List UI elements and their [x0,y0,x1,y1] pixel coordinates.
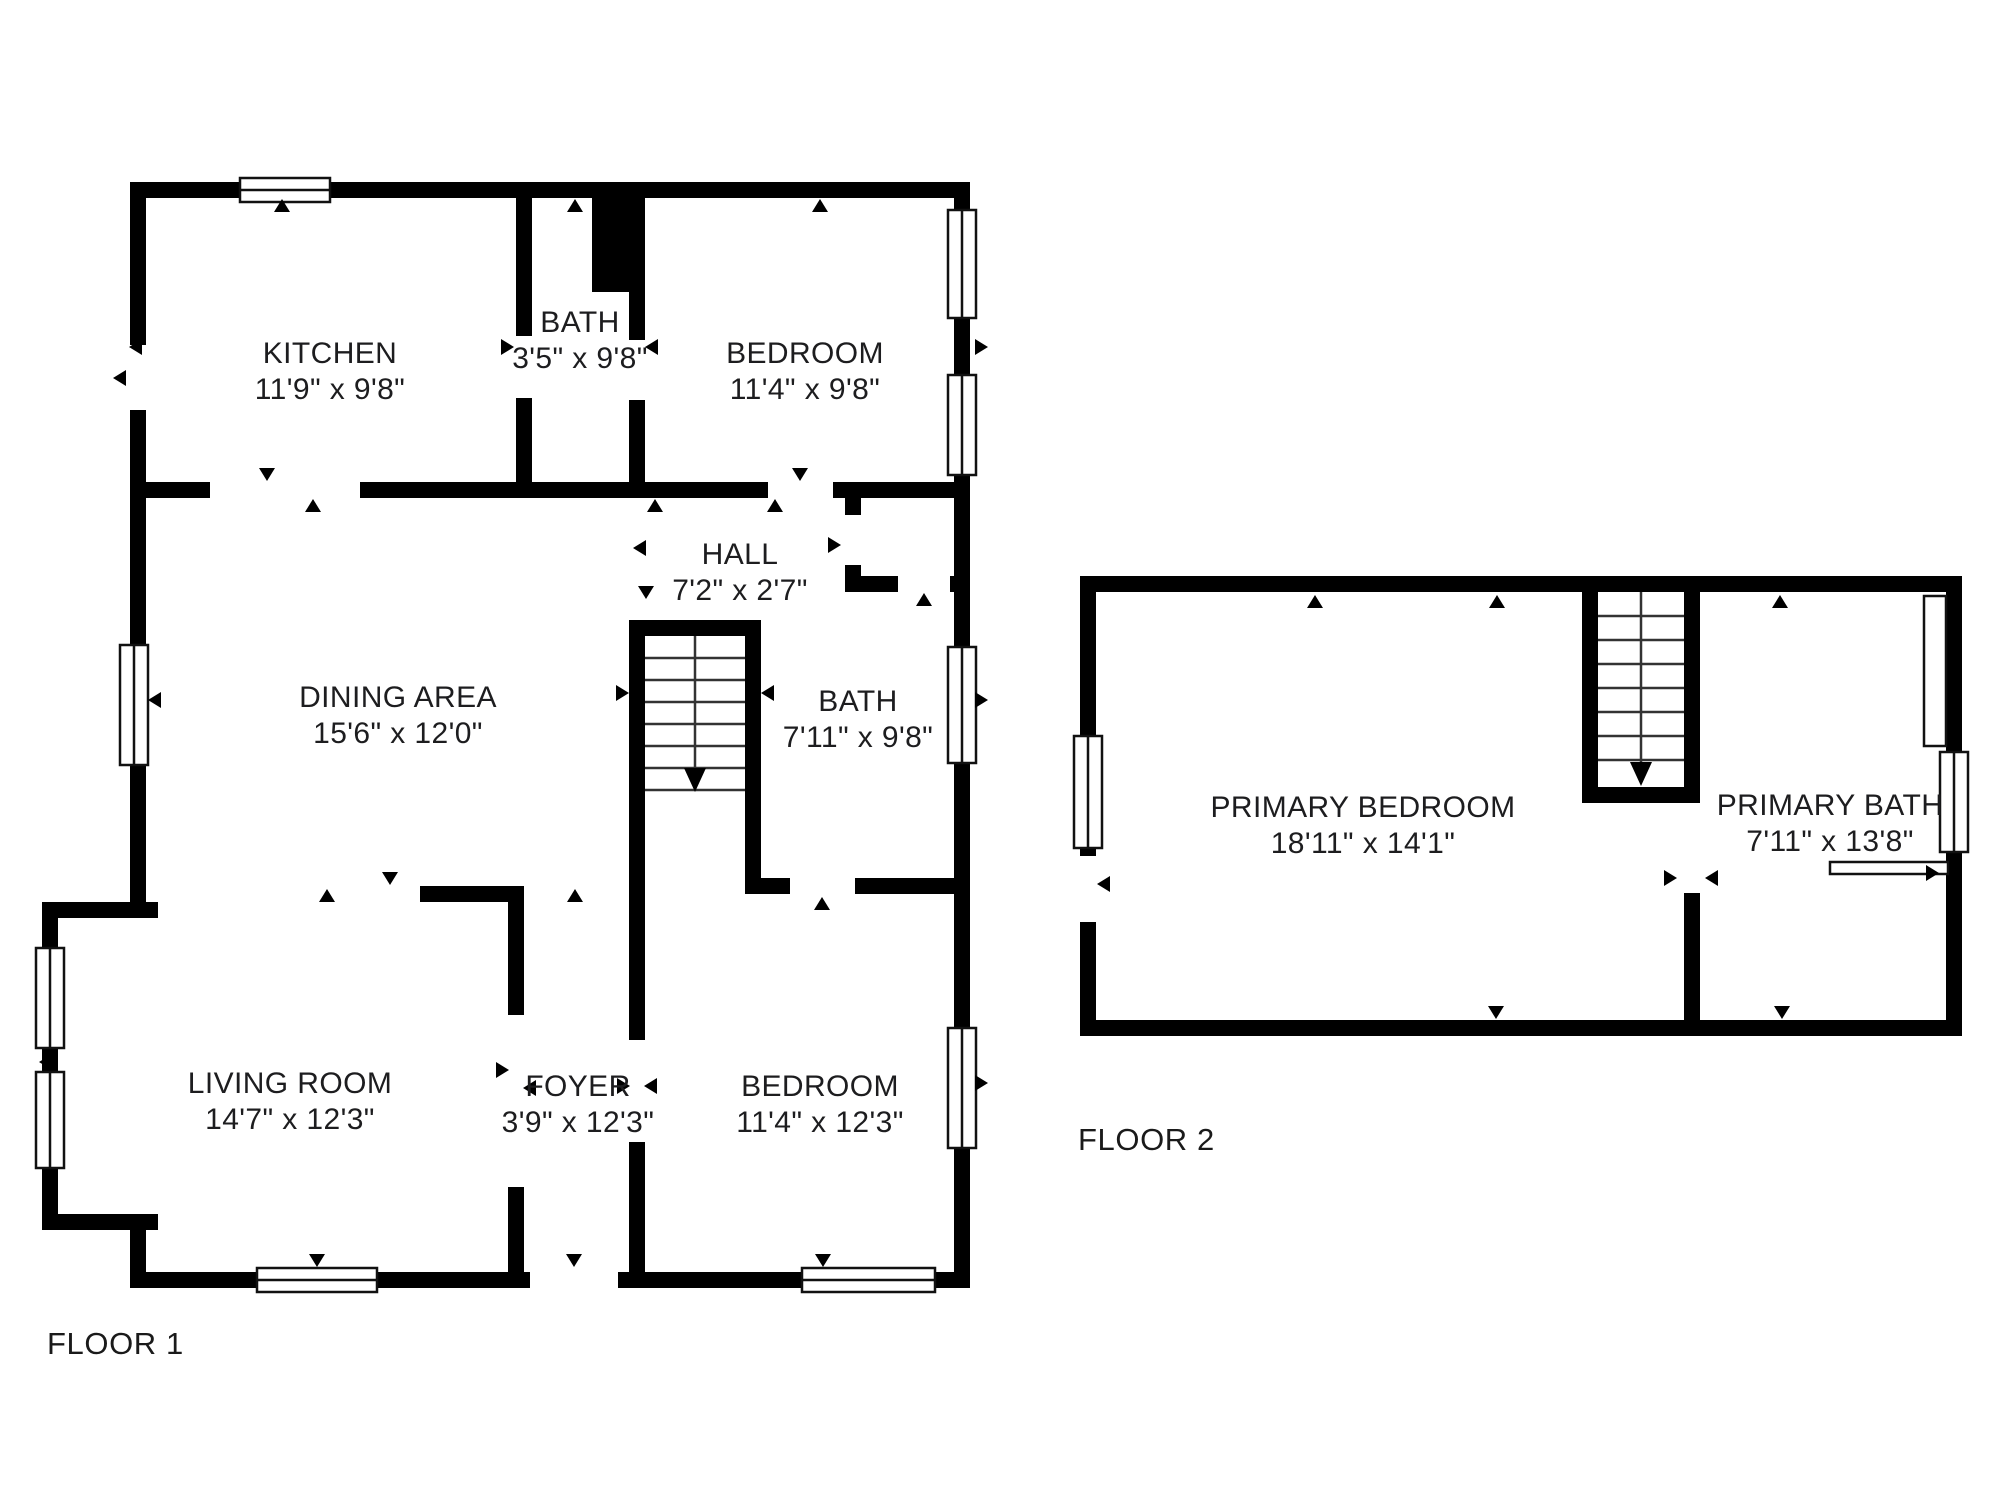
door-opening [898,574,950,594]
room-label-foyer: FOYER 3'9" x 12'3" [502,1069,655,1141]
opening-marker-icon [148,692,161,708]
window-icon [948,210,976,318]
opening-marker-icon [113,370,126,386]
room-name: PRIMARY BATH [1717,788,1944,824]
room-dims: 3'5" x 9'8" [512,341,648,377]
opening-marker-icon [1097,876,1110,892]
front-door-opening [530,1270,618,1290]
stair-down-icon [1630,762,1652,786]
window-icon [240,178,330,202]
closet-fixture [1924,596,1946,746]
opening-marker-icon [812,199,828,212]
closet-block [592,182,645,292]
room-name: FOYER [502,1069,655,1105]
room-dims: 7'2" x 2'7" [672,573,808,609]
door-opening [790,876,855,896]
room-name: KITCHEN [255,336,405,372]
window-icon [802,1268,935,1292]
opening-marker-icon [647,499,663,512]
floor2-label: FLOOR 2 [1078,1122,1215,1158]
opening-marker-icon [1772,595,1788,608]
staircase-floor1 [645,636,745,792]
room-dims: 14'7" x 12'3" [188,1102,392,1138]
window-icon [1940,752,1968,852]
wall [629,620,761,636]
window-icon [948,375,976,475]
opening-marker-icon [319,889,335,902]
window-icon [948,647,976,763]
wall [130,182,146,918]
opening-marker-icon [1664,870,1677,886]
opening-marker-icon [916,593,932,606]
room-dims: 18'11" x 14'1" [1211,826,1516,862]
opening-marker-icon [975,692,988,708]
wall [1582,787,1700,803]
opening-marker-icon [259,468,275,481]
opening-marker-icon [638,586,654,599]
door-opening [210,480,360,500]
room-name: LIVING ROOM [188,1066,392,1102]
window-icon [36,1072,64,1168]
opening-marker-icon [814,897,830,910]
room-dims: 3'9" x 12'3" [502,1105,655,1141]
door-opening [768,480,833,500]
opening-marker-icon [1488,1006,1504,1019]
door-opening [843,515,863,565]
room-name: DINING AREA [299,680,497,716]
room-label-bath-mid: BATH 7'11" x 9'8" [783,684,933,756]
stair-down-icon [684,768,706,792]
opening-marker-icon [1774,1006,1790,1019]
door-opening [1078,856,1098,922]
opening-marker-icon [305,499,321,512]
opening-marker-icon [1705,870,1718,886]
window-icon [1074,736,1102,848]
room-dims: 11'4" x 9'8" [726,372,884,408]
wall [1080,1020,1962,1036]
floor1-door-openings [128,336,950,1290]
room-name: PRIMARY BEDROOM [1211,790,1516,826]
room-label-primary-bedroom: PRIMARY BEDROOM 18'11" x 14'1" [1211,790,1516,862]
wall [1582,592,1598,803]
room-name: BEDROOM [726,336,884,372]
wall [1684,893,1700,1036]
room-label-bath-top: BATH 3'5" x 9'8" [512,305,648,377]
room-name: HALL [672,537,808,573]
opening-marker-icon [975,339,988,355]
opening-marker-icon [309,1254,325,1267]
wall [745,620,761,894]
room-dims: 7'11" x 9'8" [783,720,933,756]
window-icon [257,1268,377,1292]
floorplan-page: KITCHEN 11'9" x 9'8" BATH 3'5" x 9'8" BE… [0,0,2000,1500]
room-name: BATH [512,305,648,341]
opening-marker-icon [767,499,783,512]
room-label-bedroom-top: BEDROOM 11'4" x 9'8" [726,336,884,408]
opening-marker-icon [566,1254,582,1267]
wall [629,620,645,1272]
room-dims: 11'4" x 12'3" [736,1105,904,1141]
room-name: BEDROOM [736,1069,904,1105]
opening-marker-icon [1307,595,1323,608]
opening-marker-icon [616,685,629,701]
wall [745,878,970,894]
door-opening [128,345,148,410]
wall [1684,592,1700,803]
opening-marker-icon [382,872,398,885]
wall [42,902,158,918]
opening-marker-icon [761,685,774,701]
opening-marker-icon [567,199,583,212]
room-label-kitchen: KITCHEN 11'9" x 9'8" [255,336,405,408]
floor1-label: FLOOR 1 [47,1326,184,1362]
opening-marker-icon [633,540,646,556]
opening-marker-icon [792,468,808,481]
room-name: BATH [783,684,933,720]
room-dims: 7'11" x 13'8" [1717,824,1944,860]
room-label-dining-area: DINING AREA 15'6" x 12'0" [299,680,497,752]
window-icon [948,1028,976,1148]
room-label-primary-bath: PRIMARY BATH 7'11" x 13'8" [1717,788,1944,860]
room-label-bedroom-bottom: BEDROOM 11'4" x 12'3" [736,1069,904,1141]
room-dims: 15'6" x 12'0" [299,716,497,752]
staircase-floor2 [1598,592,1684,786]
opening-marker-icon [567,889,583,902]
floor2-door-openings [1078,856,1098,922]
room-label-hall: HALL 7'2" x 2'7" [672,537,808,609]
wall [1080,576,1962,592]
opening-marker-icon [815,1254,831,1267]
opening-marker-icon [975,1075,988,1091]
window-icon [36,948,64,1048]
opening-marker-icon [828,537,841,553]
room-dims: 11'9" x 9'8" [255,372,405,408]
window-icon [120,645,148,765]
opening-marker-icon [1489,595,1505,608]
room-label-living-room: LIVING ROOM 14'7" x 12'3" [188,1066,392,1138]
